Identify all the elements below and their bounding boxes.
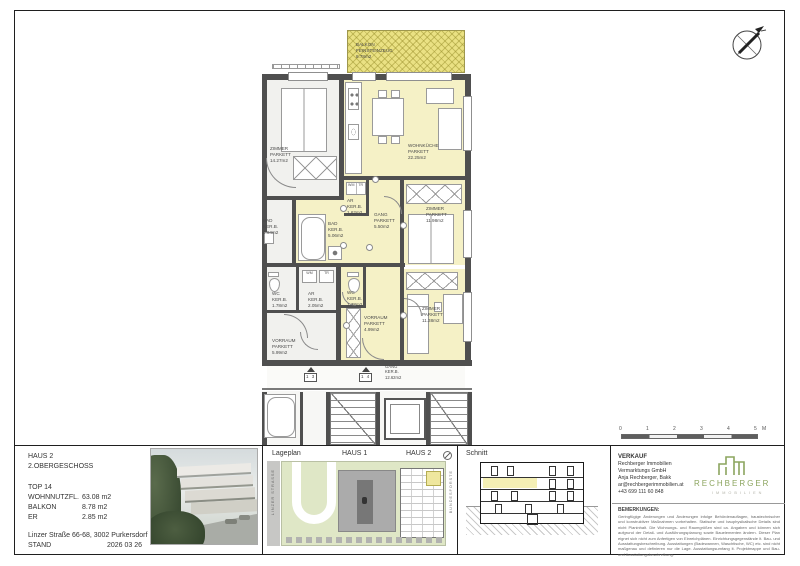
floor-title: 2.OBERGESCHOSS [28, 462, 93, 472]
stand-value: 2026 03 26 [107, 541, 142, 551]
bemerkungen-title: BEMERKUNGEN: [618, 507, 659, 513]
cell-divider-2 [457, 445, 458, 555]
wall-segment [339, 176, 471, 180]
wardrobe [346, 308, 361, 358]
washer-label: WM [303, 271, 316, 276]
scale-tick: 5 [754, 426, 757, 432]
cooktop [348, 88, 359, 110]
fixture-mark [372, 176, 379, 183]
logo-subtitle: IMMOBILIEN [712, 491, 764, 495]
door-tag-label: 1 4 [359, 373, 372, 382]
schnitt-window [549, 491, 556, 501]
bemerkungen-text: Geringfügige Änderungen und Änderungen i… [618, 514, 780, 557]
chair [391, 90, 400, 98]
double-bed [281, 88, 327, 152]
fixture-mark [400, 312, 407, 319]
scale-tick: 1 [646, 426, 649, 432]
lageplan-title: Lageplan [272, 450, 301, 457]
scale-tick: 2 [673, 426, 676, 432]
wall-segment [366, 180, 369, 216]
toilet-tank [347, 272, 359, 277]
room-area: 5.50m2 [374, 224, 395, 230]
door-triangle-icon [362, 367, 370, 372]
mini-compass-icon [443, 451, 452, 460]
street-label: LINZER STRASSE [271, 469, 275, 515]
scale-tick: 3 [700, 426, 703, 432]
sink [348, 124, 359, 140]
door-tag-label: 1 3 [304, 373, 317, 382]
lageplan-haus2-building [400, 468, 444, 538]
washer-box: WM [302, 270, 317, 283]
schnitt-window [495, 504, 502, 514]
room-label-ar: AR KER.B. 1.62m2 [347, 198, 362, 216]
room-label-zimmer-1: ZIMMER PARKETT 11.98m2 [426, 206, 447, 224]
bathtub-inner [301, 217, 325, 260]
schnitt-highlighted-floor [483, 478, 537, 488]
wall-segment [296, 267, 299, 310]
schnitt-window [507, 466, 514, 476]
stand-label: STAND [28, 541, 51, 551]
door-tag-top13: 1 3 [304, 367, 317, 382]
room-area: 4.94m2 [263, 230, 278, 236]
photo-car [225, 519, 237, 524]
photo-trees [150, 511, 205, 545]
fixture-mark [400, 222, 407, 229]
washer-dryer: WM TR [346, 182, 366, 195]
window [463, 292, 472, 342]
washbasin [328, 246, 342, 260]
forest-label: BUNDESFORSTE [449, 470, 453, 513]
lageplan-haus1-label: HAUS 1 [342, 450, 367, 457]
room-label-vorraum-neighbour: VORRAUM PARKETT 5.99m2 [272, 338, 295, 356]
schnitt-window [567, 479, 574, 489]
lageplan-driveway [292, 462, 336, 524]
room-label-wohnkueche: WOHNKÜCHE PARKETT 22.25m2 [408, 143, 439, 161]
area-row-value: 63.08 m2 [82, 493, 111, 503]
room-label-vorraum: VORRAUM PARKETT 4.99m2 [364, 315, 387, 333]
room-label-gang: GANG PARKETT 5.50m2 [374, 212, 395, 230]
room-area: 8.78m2 [356, 54, 393, 60]
cell-divider-1 [262, 445, 263, 555]
window [386, 72, 452, 81]
wall-segment [262, 263, 405, 267]
toilet-tank [268, 272, 279, 277]
wall-segment [262, 388, 472, 390]
room-label-bad-neighbour: BAD KER.B. 4.94m2 [263, 218, 278, 236]
room-label-gang-allgemein: GANG KER.B. 12.62m2 [385, 364, 401, 380]
lageplan-haus2-label: HAUS 2 [406, 450, 431, 457]
room-area: 5.06m2 [328, 233, 343, 239]
wardrobe [406, 272, 458, 290]
verkauf-line: Rechberger Immobilien [618, 461, 672, 468]
fixture-mark [343, 322, 350, 329]
room-area: 11.38m2 [422, 318, 443, 324]
wall-segment [292, 200, 296, 263]
scale-tick: 4 [727, 426, 730, 432]
schnitt-window [567, 491, 574, 501]
balcony-door [352, 72, 376, 81]
lageplan-map [281, 461, 446, 546]
schnitt-window [491, 466, 498, 476]
area-row-label: ER [28, 513, 38, 523]
area-row-label: BALKON [28, 503, 56, 513]
room-label-wc-neighbour: WC KER.B. 1.78m2 [272, 291, 287, 309]
room-area: 11.98m2 [426, 218, 447, 224]
room-area: 2.05m2 [308, 303, 323, 309]
schnitt-window [549, 466, 556, 476]
room-area: 1.38m2 [347, 302, 362, 308]
area-row-value: 8.78 m2 [82, 503, 107, 513]
sofa [426, 88, 454, 104]
schnitt-window [491, 491, 498, 501]
schnitt-title: Schnitt [466, 450, 487, 457]
dryer-label: TR [357, 183, 366, 194]
chair [391, 136, 400, 144]
schnitt-basement-door [527, 514, 538, 525]
dining-table [372, 98, 404, 136]
haus-title: HAUS 2 [28, 452, 53, 462]
door-tag-top14: 1 4 [359, 367, 372, 382]
wall-segment [262, 360, 472, 366]
photo-base [191, 499, 257, 514]
elevator-cab [390, 404, 420, 434]
area-row-label: WOHNNUTZFL. [28, 493, 79, 503]
lageplan-parking [286, 537, 442, 543]
window [463, 96, 472, 151]
wall-segment [376, 392, 380, 445]
schnitt-building [480, 462, 584, 524]
area-row-value: 2.85 m2 [82, 513, 107, 523]
logo-wordmark: RECHBERGER [694, 479, 770, 488]
schnitt-window [549, 479, 556, 489]
schnitt-window [511, 491, 518, 501]
rechberger-logo-icon [716, 452, 750, 476]
bathtub-inner [267, 397, 295, 437]
room-label-balkon: BALKON FEINSTEINZEUG 8.78m2 [356, 42, 393, 60]
window [288, 72, 328, 81]
fixture-mark [340, 205, 347, 212]
window [463, 210, 472, 258]
verkauf-divider [612, 503, 785, 504]
sofa [438, 108, 462, 150]
staircase [430, 392, 468, 445]
top-number: TOP 14 [28, 483, 52, 493]
wall-segment [262, 196, 344, 200]
lageplan-street-strip: LINZER STRASSE [267, 461, 280, 546]
room-label-ar-neighbour: AR KER.B. 2.05m2 [308, 291, 323, 309]
scale-tick: 0 [619, 426, 622, 432]
titleblock-divider [14, 445, 785, 446]
schnitt-window [557, 504, 564, 514]
wall-segment [363, 267, 366, 307]
washer-label: WM [347, 183, 357, 194]
scale-unit: M [762, 426, 766, 432]
room-area: 1.78m2 [272, 303, 287, 309]
elevator [384, 398, 426, 440]
building-photo [150, 448, 258, 545]
room-label-zimmer-links: ZIMMER PARKETT 14.27m2 [270, 146, 291, 164]
schnitt-window [567, 466, 574, 476]
north-arrow-icon [728, 20, 774, 68]
parapet [272, 64, 340, 69]
fixture-mark [340, 242, 347, 249]
wall-segment [339, 74, 344, 200]
address: Linzer Straße 66-68, 3002 Purkersdorf [28, 531, 147, 541]
desk [443, 294, 463, 324]
wardrobe [293, 156, 337, 180]
scale-bar-strip [621, 434, 758, 439]
dryer-label: TR [320, 271, 333, 276]
cell-divider-3 [610, 445, 611, 555]
room-label-zimmer-2: ZIMMER PARKETT 11.38m2 [422, 306, 443, 324]
schnitt-window [525, 504, 532, 514]
lageplan-highlighted-unit [426, 471, 441, 486]
wardrobe [406, 184, 462, 204]
photo-car [239, 515, 250, 520]
room-area: 14.27m2 [270, 158, 291, 164]
room-label-wc: WC KER.B. 1.38m2 [347, 290, 362, 308]
chair [378, 90, 387, 98]
room-area: 22.25m2 [408, 155, 439, 161]
lock-icon [362, 497, 367, 504]
schnitt-floor-line [481, 501, 583, 502]
room-area: 5.99m2 [272, 350, 295, 356]
chair [378, 136, 387, 144]
room-area: 12.62m2 [385, 375, 401, 380]
verkauf-phone: +43 699 111 60 848 [618, 489, 664, 497]
dryer-box: TR [319, 270, 334, 283]
lageplan-haus1-building [338, 470, 396, 532]
room-label-bad: BAD KER.B. 5.06m2 [328, 221, 343, 239]
door-triangle-icon [307, 367, 315, 372]
wall-segment [262, 310, 339, 313]
room-area: 1.62m2 [347, 210, 362, 216]
wall-segment [300, 392, 303, 445]
schnitt-floor-line [481, 489, 583, 490]
room-area: 4.99m2 [364, 327, 387, 333]
staircase [330, 392, 376, 445]
fixture-mark [366, 244, 373, 251]
plan-sheet: BALKON FEINSTEINZEUG 8.78m2 [0, 0, 800, 566]
